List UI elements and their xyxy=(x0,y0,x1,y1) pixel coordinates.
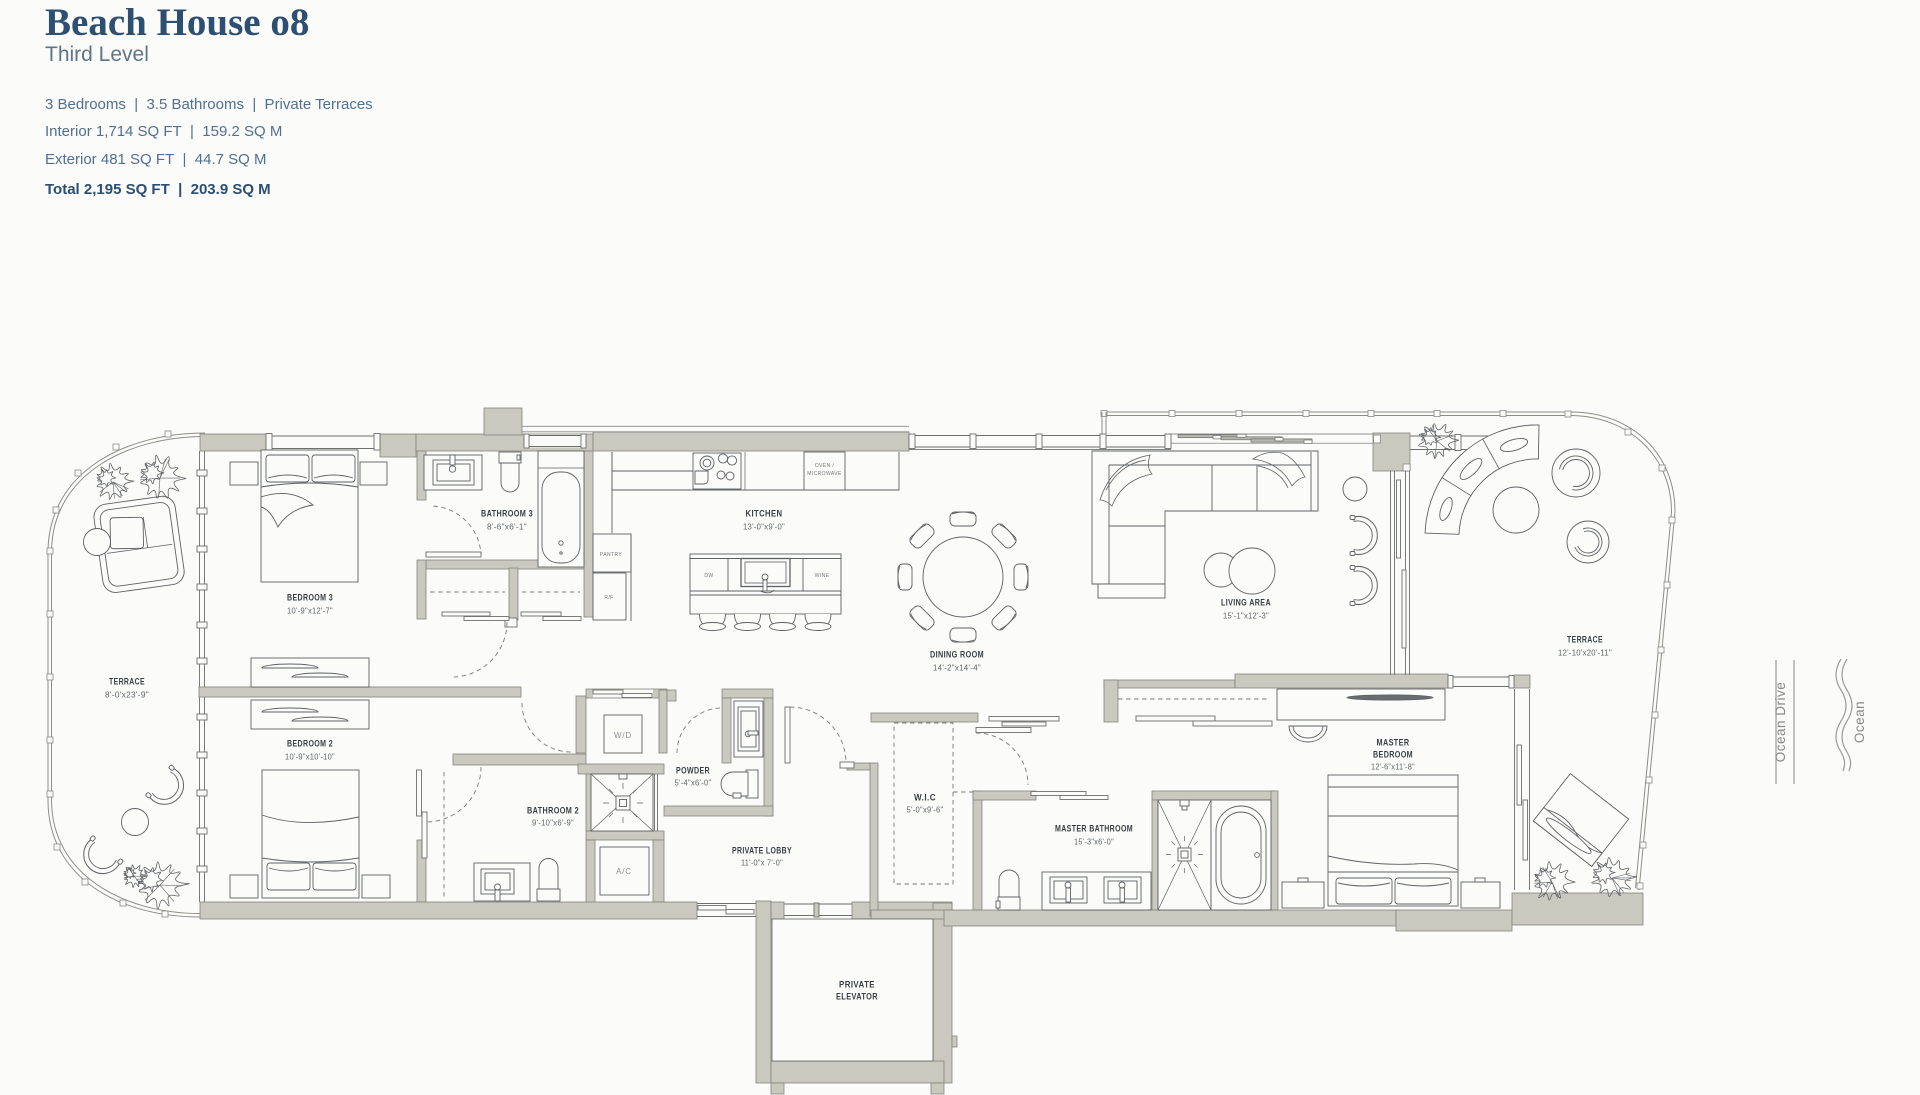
svg-text:OVEN /: OVEN / xyxy=(815,463,835,469)
svg-text:W.I.C: W.I.C xyxy=(914,793,936,804)
svg-text:15'-1"x12'-3": 15'-1"x12'-3" xyxy=(1223,612,1269,621)
svg-text:5'-4"x6'-0": 5'-4"x6'-0" xyxy=(675,779,712,788)
svg-text:ELEVATOR: ELEVATOR xyxy=(836,992,878,1003)
svg-text:Ocean: Ocean xyxy=(1852,701,1867,743)
svg-text:TERRACE: TERRACE xyxy=(109,677,145,688)
svg-text:10'-9"x12'-7": 10'-9"x12'-7" xyxy=(287,607,333,616)
svg-text:BATHROOM 2: BATHROOM 2 xyxy=(527,806,579,817)
svg-text:8'-6"x6'-1": 8'-6"x6'-1" xyxy=(487,523,527,532)
svg-text:5'-0"x9'-6": 5'-0"x9'-6" xyxy=(907,806,944,815)
svg-text:13'-0"x9'-0": 13'-0"x9'-0" xyxy=(743,523,785,532)
svg-text:KITCHEN: KITCHEN xyxy=(746,509,783,520)
svg-text:12'-6"x11'-8": 12'-6"x11'-8" xyxy=(1371,763,1415,772)
svg-text:PRIVATE: PRIVATE xyxy=(839,980,875,991)
svg-text:MASTER BATHROOM: MASTER BATHROOM xyxy=(1055,824,1133,835)
svg-text:Ocean Drive: Ocean Drive xyxy=(1773,682,1788,763)
svg-text:14'-2"x14'-4": 14'-2"x14'-4" xyxy=(933,664,981,673)
svg-text:15'-3"x6'-0": 15'-3"x6'-0" xyxy=(1074,838,1114,847)
svg-text:BEDROOM: BEDROOM xyxy=(1373,750,1413,761)
svg-text:9'-10"x6'-9": 9'-10"x6'-9" xyxy=(532,819,574,828)
svg-text:BATHROOM 3: BATHROOM 3 xyxy=(481,509,533,520)
svg-text:8'-0'x23'-9": 8'-0'x23'-9" xyxy=(105,691,149,700)
svg-text:BEDROOM 3: BEDROOM 3 xyxy=(287,593,333,604)
svg-text:12'-10'x20'-11": 12'-10'x20'-11" xyxy=(1558,649,1612,658)
svg-text:BEDROOM 2: BEDROOM 2 xyxy=(287,739,333,750)
svg-text:MICROWAVE: MICROWAVE xyxy=(807,471,842,477)
svg-text:R/F: R/F xyxy=(604,595,613,601)
svg-text:WINE: WINE xyxy=(815,573,830,579)
svg-text:LIVING AREA: LIVING AREA xyxy=(1221,598,1271,609)
svg-text:DW: DW xyxy=(704,573,713,579)
svg-text:PANTRY: PANTRY xyxy=(600,552,622,558)
svg-text:DINING ROOM: DINING ROOM xyxy=(930,650,984,661)
svg-text:10'-9"x10'-10": 10'-9"x10'-10" xyxy=(285,753,335,762)
svg-text:W/D: W/D xyxy=(614,731,632,740)
svg-text:PRIVATE LOBBY: PRIVATE LOBBY xyxy=(732,846,792,857)
svg-text:11'-0"x 7'-0": 11'-0"x 7'-0" xyxy=(741,859,783,868)
svg-text:MASTER: MASTER xyxy=(1377,738,1410,749)
svg-text:TERRACE: TERRACE xyxy=(1567,635,1603,646)
svg-text:POWDER: POWDER xyxy=(676,766,710,777)
svg-text:A/C: A/C xyxy=(616,867,632,876)
